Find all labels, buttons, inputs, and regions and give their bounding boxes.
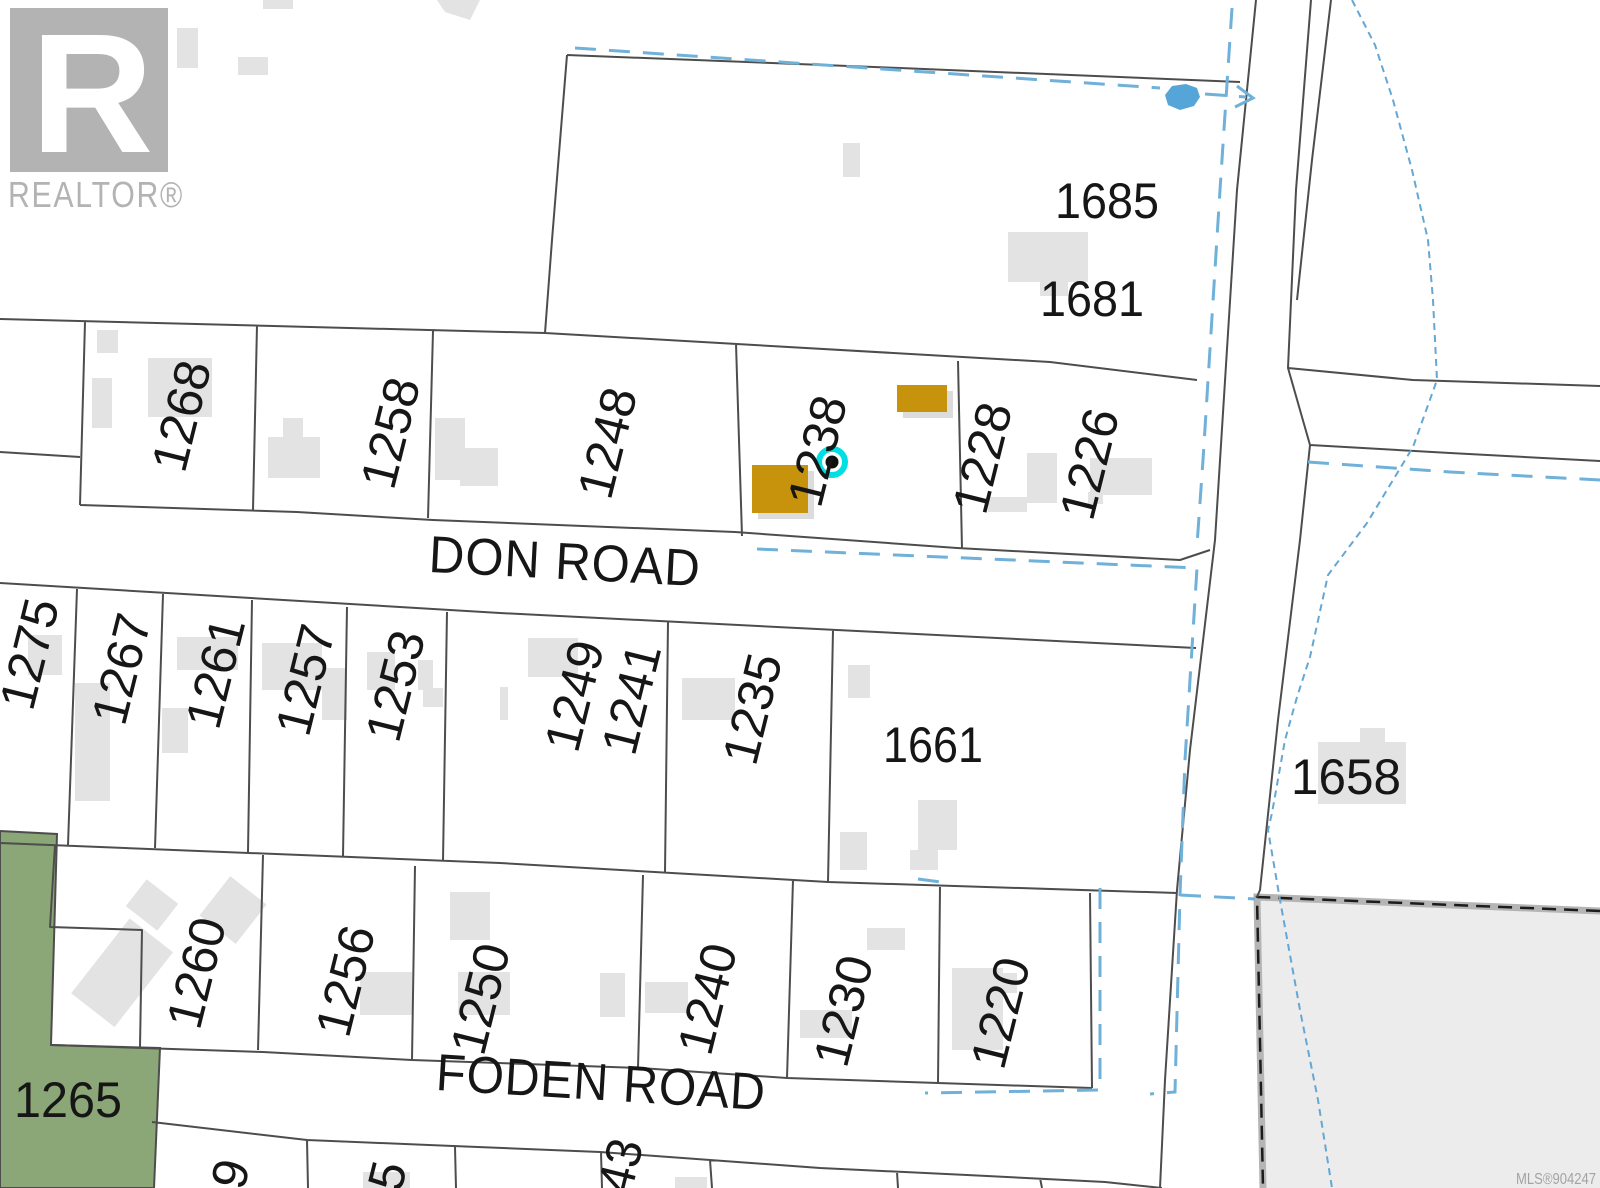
lot-label-1226: 1226 [1049, 403, 1130, 525]
lot-label-partial-43: 43 [587, 1133, 654, 1188]
lot-label-1661: 1661 [883, 717, 983, 773]
lot-label-1265: 1265 [14, 1072, 122, 1128]
parcel-map: 1268 1258 1248 1238 1228 1226 1275 1267 … [0, 0, 1600, 1188]
lot-label-1235: 1235 [712, 648, 793, 770]
green-space-parcel [0, 831, 160, 1188]
lot-label-1261: 1261 [175, 612, 256, 734]
building-footprint [843, 143, 860, 177]
lot-label-1681: 1681 [1040, 271, 1144, 327]
building-footprint [268, 437, 320, 478]
map-canvas: 1268 1258 1248 1238 1228 1226 1275 1267 … [0, 0, 1600, 1188]
building-footprint [437, 0, 480, 20]
building-footprint [910, 850, 938, 870]
lot-label-1253: 1253 [355, 625, 436, 747]
realtor-logo-r: R [31, 0, 154, 189]
building-footprint [263, 0, 293, 9]
building-footprint [450, 892, 490, 940]
lot-label-partial-5: 5 [357, 1156, 418, 1188]
lot-label-1240: 1240 [667, 938, 748, 1060]
road-label-don: DON ROAD [428, 526, 703, 598]
building-footprint [1360, 728, 1385, 746]
lot-label-1258: 1258 [350, 372, 431, 494]
lot-label-partial-9: 9 [200, 1154, 261, 1188]
highlighted-building [897, 385, 947, 412]
lot-label-1658: 1658 [1291, 749, 1401, 805]
building-footprint [840, 832, 867, 870]
realtor-wordmark: REALTOR® [8, 174, 184, 215]
building-footprint [238, 57, 268, 75]
lot-label-1256: 1256 [305, 920, 386, 1042]
water-marker-icon [1165, 84, 1200, 110]
building-footprint [600, 973, 625, 1017]
lot-label-1685: 1685 [1055, 173, 1159, 229]
building-footprint [177, 28, 198, 68]
building-footprint [460, 448, 498, 486]
park-fill [1257, 897, 1600, 1188]
lot-label-1230: 1230 [803, 950, 884, 1072]
lot-label-1267: 1267 [81, 608, 162, 730]
mls-number: MLS®904247 [1516, 1171, 1596, 1188]
building-footprint [848, 665, 870, 698]
lot-label-1250: 1250 [440, 938, 521, 1060]
building-footprint [97, 330, 118, 353]
lot-label-1260: 1260 [156, 912, 237, 1034]
building-footprint [918, 800, 957, 850]
building-footprint [867, 928, 905, 950]
lot-label-1257: 1257 [265, 619, 346, 741]
lot-label-1248: 1248 [567, 382, 648, 504]
building-footprint [92, 378, 112, 428]
building-footprint [675, 1177, 707, 1188]
building-footprint [500, 687, 508, 720]
park-parcel [1257, 897, 1600, 1188]
building-footprint [423, 688, 443, 707]
lot-label-1238: 1238 [777, 390, 858, 512]
realtor-logo: R REALTOR® [8, 0, 184, 215]
